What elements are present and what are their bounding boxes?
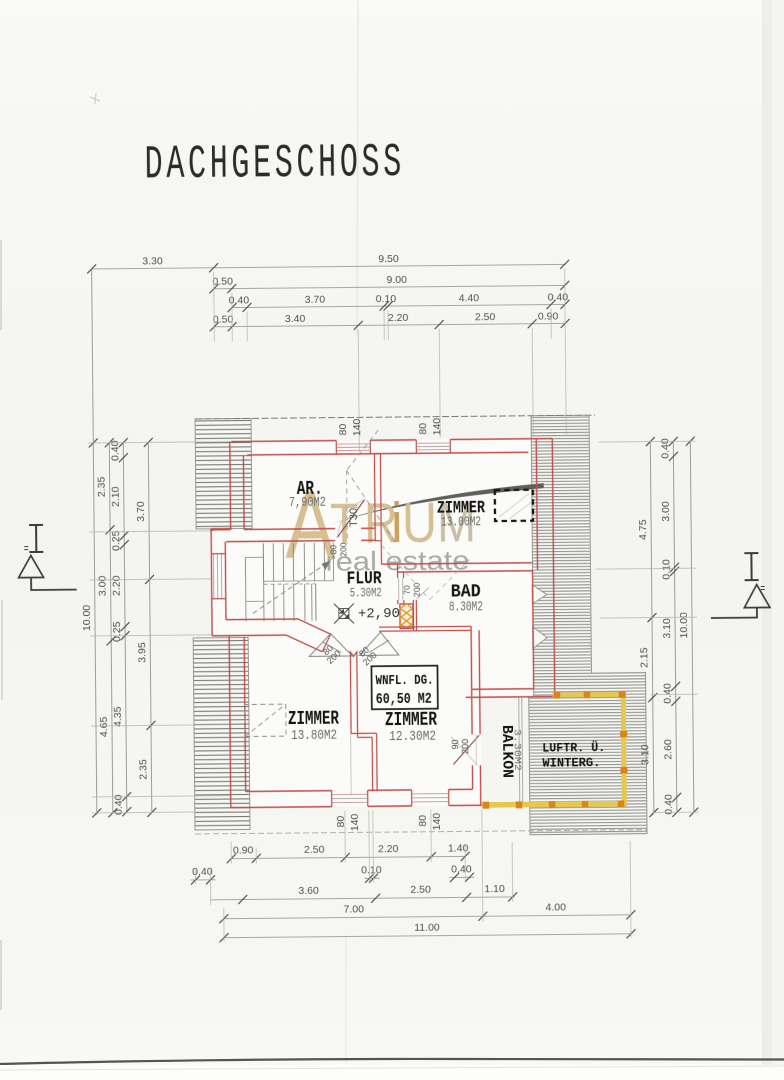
- svg-text:200: 200: [460, 739, 470, 754]
- svg-text:2.20: 2.20: [388, 312, 409, 324]
- svg-text:0.10: 0.10: [376, 293, 397, 305]
- svg-text:8.30M2: 8.30M2: [449, 600, 483, 615]
- svg-text:80: 80: [417, 423, 429, 435]
- svg-text:2.50: 2.50: [475, 311, 496, 323]
- svg-text:4.35: 4.35: [112, 706, 124, 727]
- svg-text:2.35: 2.35: [137, 759, 149, 780]
- svg-text:2.20: 2.20: [378, 843, 399, 855]
- svg-text:4.00: 4.00: [545, 901, 566, 913]
- svg-text:60,50 M2: 60,50 M2: [376, 691, 432, 709]
- svg-text:3.95: 3.95: [136, 642, 148, 663]
- svg-text:3.70: 3.70: [305, 294, 326, 306]
- svg-text:0.40: 0.40: [663, 794, 675, 815]
- svg-text:T30: T30: [348, 508, 360, 527]
- svg-text:2.50: 2.50: [410, 884, 431, 896]
- svg-text:3.10: 3.10: [639, 744, 651, 765]
- svg-text:140: 140: [431, 418, 443, 436]
- svg-text:0.50: 0.50: [212, 276, 233, 288]
- svg-text:13.00M2: 13.00M2: [441, 515, 481, 530]
- svg-text:1.10: 1.10: [484, 883, 505, 895]
- svg-text:3.70: 3.70: [135, 501, 147, 522]
- svg-text:3.10: 3.10: [661, 618, 673, 639]
- svg-text:13.80M2: 13.80M2: [291, 728, 337, 744]
- svg-text:LUFTR. Ü.: LUFTR. Ü.: [542, 739, 605, 756]
- svg-text:4.65: 4.65: [98, 716, 110, 737]
- svg-text:+2,90: +2,90: [358, 606, 400, 622]
- svg-text:2.35: 2.35: [96, 476, 108, 497]
- svg-text:0.40: 0.40: [662, 683, 674, 704]
- svg-text:0.10: 0.10: [361, 864, 382, 876]
- svg-text:4.40: 4.40: [459, 292, 480, 304]
- svg-text:2.10: 2.10: [110, 486, 122, 507]
- svg-text:80: 80: [337, 423, 349, 435]
- svg-text:0.10: 0.10: [660, 559, 672, 580]
- svg-text:80: 80: [335, 816, 347, 828]
- svg-text:3.30: 3.30: [142, 255, 163, 267]
- svg-text:0,40: 0,40: [451, 863, 472, 875]
- svg-text:0.25: 0.25: [111, 621, 123, 642]
- svg-text:2.60: 2.60: [662, 739, 674, 760]
- svg-text:WNFL. DG.: WNFL. DG.: [376, 673, 434, 690]
- svg-text:3.40: 3.40: [285, 313, 306, 325]
- svg-text:200: 200: [412, 582, 422, 597]
- svg-text:140: 140: [431, 813, 443, 831]
- svg-text:7,90M2: 7,90M2: [289, 495, 326, 511]
- svg-text:10.00: 10.00: [678, 612, 690, 639]
- svg-text:0.40: 0.40: [109, 440, 121, 461]
- svg-text:10.00: 10.00: [81, 605, 93, 632]
- svg-text:0.90: 0.90: [233, 844, 254, 856]
- svg-text:WINTERG.: WINTERG.: [542, 755, 600, 771]
- svg-text:2.50: 2.50: [304, 844, 325, 856]
- svg-text:200: 200: [338, 542, 348, 557]
- svg-text:2.15: 2.15: [638, 647, 650, 668]
- svg-text:140: 140: [351, 418, 363, 436]
- svg-text:0.40: 0.40: [113, 794, 125, 815]
- svg-text:4.75: 4.75: [637, 519, 649, 540]
- svg-text:9.00: 9.00: [386, 274, 407, 286]
- svg-text:3.00: 3.00: [660, 501, 672, 522]
- svg-text:0.90: 0.90: [538, 310, 559, 322]
- svg-text:7.00: 7.00: [344, 903, 365, 915]
- svg-text:2.20: 2.20: [111, 575, 123, 596]
- svg-text:9.50: 9.50: [378, 253, 399, 265]
- svg-text:0.50: 0.50: [213, 314, 234, 326]
- svg-text:11.00: 11.00: [414, 922, 440, 934]
- svg-text:3.00: 3.00: [97, 575, 109, 596]
- svg-text:140: 140: [349, 813, 361, 831]
- svg-text:5.30M2: 5.30M2: [350, 585, 382, 600]
- svg-text:0.25: 0.25: [110, 530, 122, 551]
- svg-text:12.30M2: 12.30M2: [389, 729, 436, 745]
- svg-text:80: 80: [417, 815, 429, 827]
- svg-text:3.30M2: 3.30M2: [511, 729, 523, 771]
- svg-text:3.60: 3.60: [298, 885, 319, 897]
- svg-text:DACHGESCHOSS: DACHGESCHOSS: [144, 136, 405, 192]
- svg-text:90: 90: [450, 739, 460, 749]
- svg-text:70: 70: [402, 585, 412, 595]
